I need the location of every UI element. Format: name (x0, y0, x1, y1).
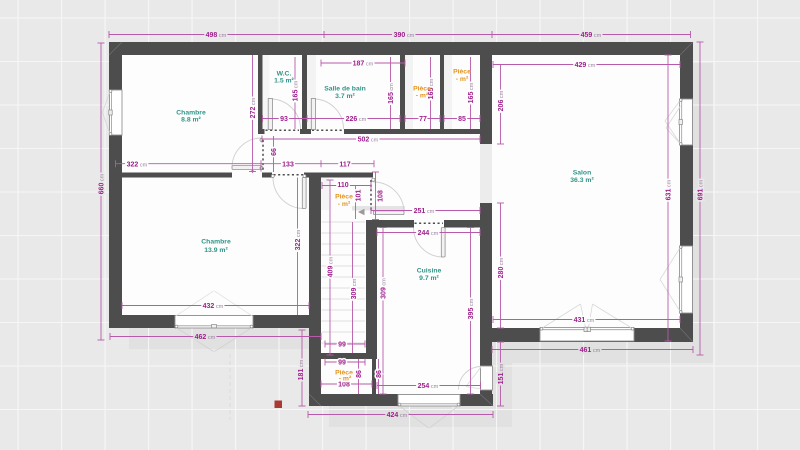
svg-text:- m²: - m² (338, 201, 351, 208)
svg-text:461 cm: 461 cm (580, 347, 601, 354)
svg-text:36.3 m²: 36.3 m² (570, 177, 594, 184)
svg-text:272 cm: 272 cm (250, 97, 257, 118)
svg-text:165 cm: 165 cm (388, 83, 395, 104)
svg-text:151 cm: 151 cm (498, 363, 505, 384)
svg-text:13.9 m²: 13.9 m² (204, 247, 228, 254)
svg-text:77: 77 (419, 116, 427, 123)
svg-text:251 cm: 251 cm (414, 208, 435, 215)
svg-text:280 cm: 280 cm (498, 257, 505, 278)
svg-text:- m²: - m² (416, 93, 429, 100)
svg-text:Pièce: Pièce (335, 194, 353, 201)
svg-text:395 cm: 395 cm (468, 298, 475, 319)
svg-text:424 cm: 424 cm (387, 412, 408, 419)
svg-text:432 cm: 432 cm (203, 303, 224, 310)
svg-text:309 cm: 309 cm (381, 278, 388, 299)
svg-text:691 cm: 691 cm (698, 179, 705, 200)
svg-text:101: 101 (356, 190, 363, 202)
svg-text:498 cm: 498 cm (206, 32, 227, 39)
svg-text:W.C.: W.C. (277, 71, 292, 78)
svg-text:8.8 m²: 8.8 m² (181, 117, 201, 124)
svg-text:Chambre: Chambre (201, 239, 231, 246)
svg-text:- m²: - m² (339, 376, 352, 383)
svg-text:429 cm: 429 cm (575, 62, 596, 69)
svg-text:409 cm: 409 cm (328, 256, 335, 277)
svg-text:99: 99 (338, 342, 346, 349)
svg-text:462 cm: 462 cm (195, 334, 216, 341)
svg-text:- m²: - m² (456, 76, 469, 83)
svg-text:Cuisine: Cuisine (417, 268, 442, 275)
svg-text:93: 93 (280, 116, 288, 123)
svg-text:181 cm: 181 cm (298, 359, 305, 380)
svg-text:133: 133 (282, 161, 294, 168)
svg-text:244 cm: 244 cm (418, 230, 439, 237)
svg-text:502 cm: 502 cm (358, 137, 379, 144)
svg-text:206 cm: 206 cm (498, 90, 505, 111)
svg-text:3.7 m²: 3.7 m² (335, 93, 355, 100)
svg-text:110: 110 (337, 182, 348, 189)
svg-text:187 cm: 187 cm (353, 61, 374, 68)
svg-text:Pièce: Pièce (453, 69, 471, 76)
svg-text:85: 85 (458, 116, 466, 123)
svg-text:108: 108 (338, 382, 350, 389)
svg-text:254 cm: 254 cm (418, 383, 439, 390)
svg-text:322 cm: 322 cm (295, 229, 302, 250)
svg-text:309 cm: 309 cm (351, 278, 358, 299)
svg-text:431 cm: 431 cm (574, 317, 595, 324)
svg-text:9.7 m²: 9.7 m² (419, 275, 439, 282)
svg-text:1.5 m²: 1.5 m² (274, 78, 294, 85)
svg-text:108: 108 (378, 190, 385, 202)
svg-text:Salle de bain: Salle de bain (324, 86, 366, 93)
svg-text:322 cm: 322 cm (127, 161, 148, 168)
svg-text:459 cm: 459 cm (581, 32, 602, 39)
svg-text:99: 99 (338, 360, 346, 367)
svg-text:390 cm: 390 cm (394, 32, 415, 39)
svg-text:226 cm: 226 cm (346, 116, 367, 123)
svg-text:Salon: Salon (573, 170, 592, 177)
svg-text:631 cm: 631 cm (666, 179, 673, 200)
svg-text:660 cm: 660 cm (99, 173, 106, 194)
svg-text:86: 86 (356, 370, 363, 378)
svg-text:86: 86 (376, 370, 383, 378)
svg-text:66: 66 (271, 148, 278, 156)
svg-text:165 cm: 165 cm (468, 82, 475, 103)
svg-text:Chambre: Chambre (176, 110, 206, 117)
svg-text:117: 117 (339, 161, 350, 168)
svg-text:Pièce: Pièce (413, 86, 431, 93)
